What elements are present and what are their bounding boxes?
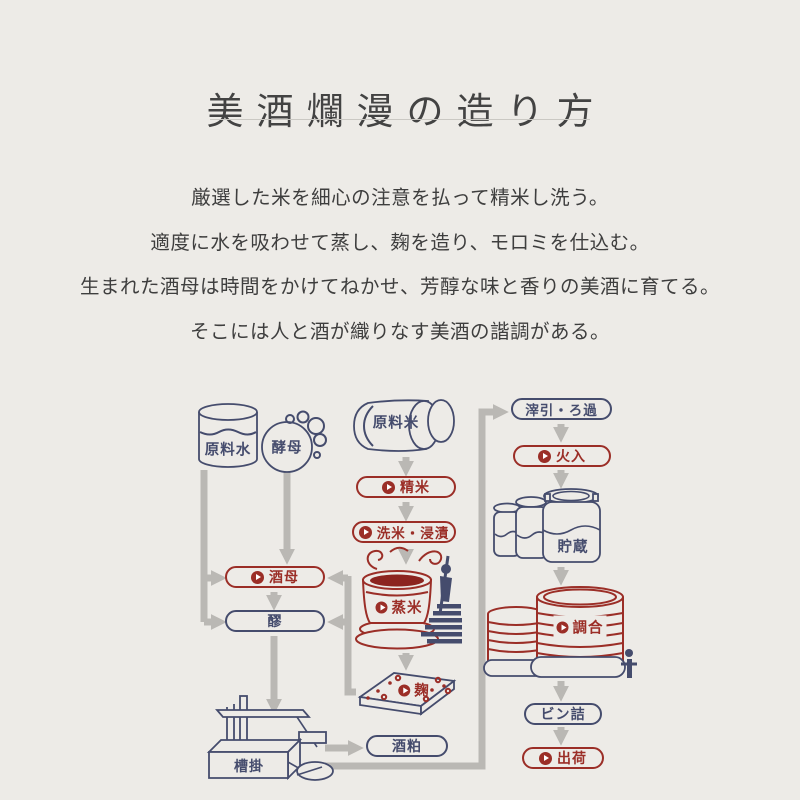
node-senmai-shinseki-button[interactable]: 洗米・浸漬 (352, 521, 456, 543)
press-illustration (209, 696, 333, 780)
page: { "title": "美酒爛漫の造り方", "intro": { "lines… (0, 0, 800, 800)
node-label: 火入 (556, 446, 586, 466)
node-shubo-button[interactable]: 酒母 (225, 566, 325, 588)
node-label: 酒母 (269, 567, 299, 587)
play-icon (557, 621, 569, 633)
chozo-label: 貯蔵 (558, 536, 589, 557)
node-label: ビン詰 (541, 704, 586, 724)
koji-label[interactable]: 麹 (398, 680, 430, 701)
play-icon (251, 571, 264, 584)
play-icon (359, 526, 372, 539)
play-icon (398, 684, 410, 696)
node-seimai-button[interactable]: 精米 (356, 476, 456, 498)
node-hiire-button[interactable]: 火入 (513, 445, 611, 467)
node-moromi: 醪 (225, 610, 325, 632)
node-label: 出荷 (557, 748, 587, 768)
chogo-label[interactable]: 調合 (554, 616, 607, 639)
node-orihiki-roka: 滓引・ろ過 (511, 398, 612, 420)
node-shukka-button[interactable]: 出荷 (522, 747, 604, 769)
node-sakekasu: 酒粕 (366, 735, 448, 757)
node-label: 醪 (268, 611, 283, 631)
play-icon (382, 481, 395, 494)
node-label: 滓引・ろ過 (525, 399, 598, 419)
node-label: 酒粕 (392, 736, 422, 756)
node-label: 洗米・浸漬 (377, 522, 450, 542)
yeast-label: 酵母 (272, 437, 303, 458)
node-label: 精米 (400, 477, 430, 497)
node-binzume: ビン詰 (524, 703, 602, 725)
play-icon (538, 450, 551, 463)
funagake-label: 槽掛 (234, 756, 264, 776)
play-icon (539, 752, 552, 765)
mushimai-label[interactable]: 蒸米 (376, 597, 423, 618)
rice-label: 原料米 (373, 412, 420, 433)
play-icon (376, 601, 388, 613)
water-label: 原料水 (205, 439, 252, 460)
